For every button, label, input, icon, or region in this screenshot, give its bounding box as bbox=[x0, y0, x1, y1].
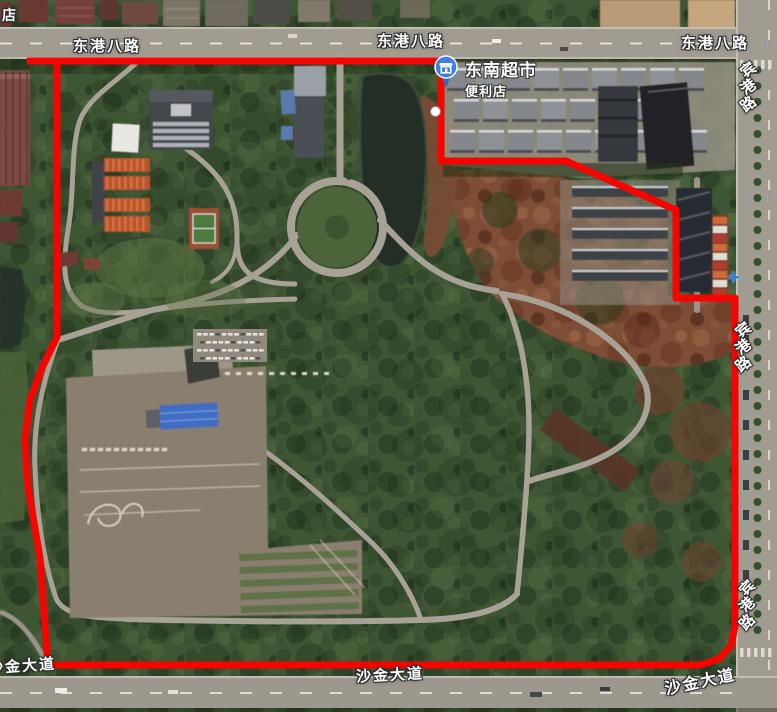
poi-supermarket[interactable]: 东南超市 便利店 bbox=[433, 55, 537, 100]
poi-title: 东南超市 bbox=[465, 56, 537, 81]
lane-arrow-up-icon: ↑ bbox=[764, 190, 771, 205]
satellite-map[interactable]: 东港八路 东港八路 东港八路 宾港路 宾港路 宾港路 沙金大道 沙金大道 沙金大… bbox=[0, 0, 777, 712]
lane-arrow-down-icon: ↓ bbox=[744, 40, 751, 55]
shop-pin-icon[interactable] bbox=[433, 55, 459, 89]
boundary-overlay bbox=[0, 0, 777, 712]
poi-dot-icon[interactable] bbox=[430, 106, 441, 117]
poi-subtitle: 便利店 bbox=[465, 81, 537, 100]
lane-arrow-down-icon: ↓ bbox=[744, 192, 751, 207]
boundary-polygon bbox=[25, 61, 735, 665]
lane-arrow-up-icon: ↑ bbox=[764, 38, 771, 53]
plus-marker-icon[interactable]: + bbox=[727, 265, 740, 291]
